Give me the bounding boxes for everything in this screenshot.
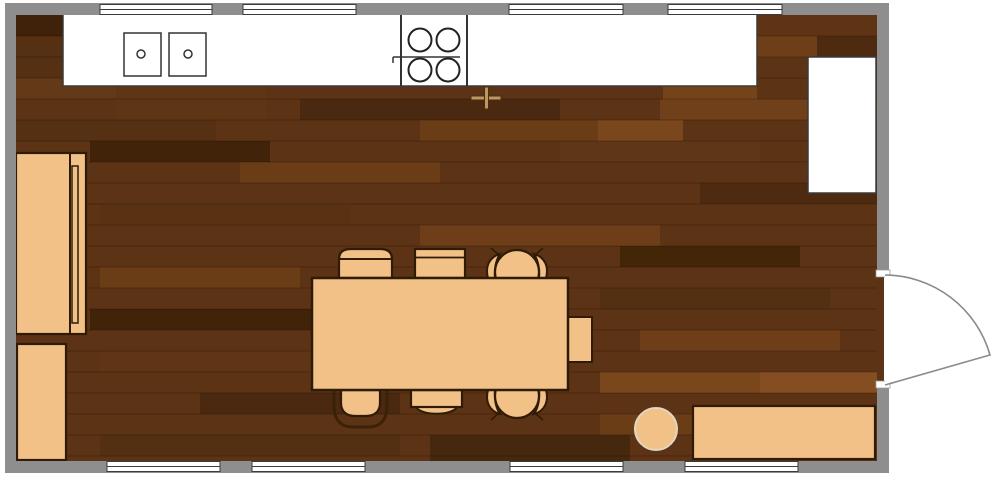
- floor-plank: [600, 288, 830, 309]
- floor-plank: [560, 141, 760, 162]
- floorplan-svg: [0, 0, 1000, 497]
- floor-plank: [100, 435, 400, 456]
- wall-right-upper: [877, 3, 889, 271]
- chair-table-end[interactable]: [568, 317, 592, 362]
- floorplan-canvas[interactable]: [0, 0, 1000, 497]
- ceiling-marker-vertical[interactable]: [485, 87, 489, 109]
- floor-plank: [16, 15, 63, 36]
- floor-plank: [420, 225, 660, 246]
- floor-plank: [600, 372, 760, 393]
- floor-plank: [760, 372, 877, 393]
- floor-plank: [757, 15, 877, 36]
- chair-bottom-arm-seat[interactable]: [341, 390, 380, 416]
- sideboard-left[interactable]: [17, 344, 66, 460]
- floor-plank: [757, 36, 817, 57]
- floor-plank: [90, 141, 270, 162]
- floor-plank: [300, 99, 560, 120]
- sink-drain-left: [137, 50, 145, 58]
- dining-table[interactable]: [312, 278, 568, 390]
- door-swing-fill: [885, 275, 990, 385]
- floor-plank: [620, 246, 800, 267]
- refrigerator[interactable]: [808, 57, 876, 193]
- floor-plank: [430, 435, 630, 461]
- floor-plank: [100, 267, 300, 288]
- wall-right-lower: [877, 387, 889, 473]
- floor-plank: [598, 120, 683, 141]
- chair-top-arch-back[interactable]: [339, 249, 392, 278]
- floor-plank: [240, 162, 440, 183]
- bench-bottom-right[interactable]: [693, 406, 875, 459]
- chair-bottom-simple[interactable]: [411, 390, 462, 407]
- door-opening-floor: [877, 277, 884, 381]
- stove-burner-4[interactable]: [437, 59, 460, 82]
- stool[interactable]: [635, 408, 677, 450]
- wardrobe-door-strip: [72, 166, 78, 323]
- floor-plank: [116, 86, 266, 120]
- wall-left: [5, 3, 16, 473]
- sink-drain-right: [184, 50, 192, 58]
- stove-burner-3[interactable]: [409, 59, 432, 82]
- chair-top-simple[interactable]: [415, 249, 465, 278]
- floor-plank: [640, 330, 840, 351]
- floor-plank: [16, 120, 216, 141]
- floor-plank: [100, 204, 350, 225]
- stove-burner-1[interactable]: [409, 29, 432, 52]
- stove-burner-2[interactable]: [437, 29, 460, 52]
